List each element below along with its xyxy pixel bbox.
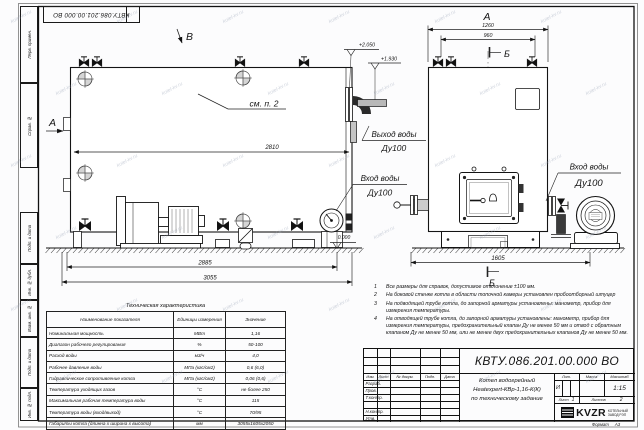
- spec-cell-name: Максимальная рабочая температура воды: [47, 395, 174, 406]
- note-number: 2: [372, 292, 386, 299]
- drain-fitting: [239, 229, 253, 250]
- tb-scale-label: Масштаб: [604, 373, 635, 380]
- note-item: 1 Все размеры для справок, допустимое от…: [372, 284, 630, 291]
- spec-cell-value: 1,16: [226, 328, 286, 339]
- margin-box-perv-primen: Перв. примен.: [20, 6, 38, 83]
- svg-text:3055: 3055: [203, 276, 217, 282]
- stamp-divider: [126, 7, 127, 22]
- svg-text:Выход воды: Выход воды: [372, 130, 417, 139]
- spec-row: Расход воды м3/ч 4,0: [47, 350, 286, 361]
- tb-mass-label: Масса: [579, 373, 604, 380]
- spec-cell-value: 0,6 (6,0): [226, 361, 286, 372]
- blower-fan: [571, 197, 620, 249]
- note-text: Все размеры для справок, допустимое откл…: [386, 284, 630, 291]
- spec-cell-units: мм: [174, 418, 226, 429]
- spec-header-value: Значение: [226, 312, 286, 328]
- svg-text:Б: Б: [504, 49, 510, 59]
- note-number: 1: [372, 284, 386, 291]
- svg-text:см. п. 2: см. п. 2: [250, 99, 279, 109]
- svg-text:1605: 1605: [491, 256, 505, 262]
- svg-text:А: А: [482, 11, 490, 23]
- format-label: Формат: [592, 422, 609, 427]
- svg-text:+2.050: +2.050: [359, 43, 375, 49]
- tb-doc-name-line1: Котел водогрейный: [479, 377, 535, 386]
- spec-cell-name: Диапазон рабочего регулирования: [47, 339, 174, 350]
- spec-cell-units: °С: [174, 395, 226, 406]
- kvzr-logo-text: KVZR: [576, 407, 606, 419]
- tb-doc-name-line2: Heatexpert-КВр-1,16-К(К): [473, 386, 541, 395]
- tb-col-dokum: № докум.: [390, 373, 420, 380]
- spec-row: Температура воды (вход/выход) °С 70/95: [47, 407, 286, 418]
- note-text: На отводящей трубе котла, до запорной ар…: [386, 316, 630, 337]
- margin-box-podp-data-1: Подп. и дата: [20, 212, 38, 264]
- tb-col-list: Лист: [377, 373, 390, 380]
- tb-sign-prov: Пров.: [364, 387, 392, 394]
- right-inlet-valve: [549, 197, 572, 238]
- company-name: КОТЕЛЬНЫЙ ЗАВОД РЭП: [608, 409, 628, 417]
- tb-col-izm: Изм.: [364, 373, 377, 380]
- tb-company-cell: KVZR КОТЕЛЬНЫЙ ЗАВОД РЭП: [554, 403, 635, 422]
- furnace-door: [460, 167, 524, 224]
- spec-cell-name: Рабочее давление воды: [47, 361, 174, 372]
- spec-cell-value: 50-100: [226, 339, 286, 350]
- note-text: На подводящей трубе котла, до запорной а…: [386, 301, 630, 315]
- spec-cell-units: м3/ч: [174, 350, 226, 361]
- svg-text:2885: 2885: [197, 261, 212, 267]
- spec-cell-units: МПа (кгс/см2): [174, 361, 226, 372]
- spec-cell-value: 115: [226, 395, 286, 406]
- spec-cell-value: 3055х1605х2050: [226, 418, 286, 429]
- spec-cell-value: не более 250: [226, 384, 286, 395]
- spec-cell-units: %: [174, 339, 226, 350]
- kvzr-logo-icon: [561, 407, 574, 418]
- spec-cell-value: 0,06 (0,6): [226, 373, 286, 384]
- spec-table-title: Техническая характеристика: [46, 303, 285, 309]
- format-note: Формат А3: [578, 422, 634, 427]
- svg-text:+1.930: +1.930: [381, 57, 397, 63]
- tb-sign-utv: Утв.: [364, 415, 392, 422]
- tb-doc-name: Котел водогрейный Heatexpert-КВр-1,16-К(…: [460, 373, 554, 426]
- inlet-label-front: Вход воды Ду100: [546, 163, 621, 202]
- margin-box-podp-data-2: Подп. и дата: [20, 337, 38, 388]
- spec-cell-name: Гидравлическое сопротивление котла: [47, 373, 174, 384]
- svg-text:Вход воды: Вход воды: [361, 174, 400, 183]
- tb-scale-value: 1:15: [604, 380, 635, 396]
- margin-label: Подп. и дата: [27, 349, 32, 376]
- tb-lit-value: И: [554, 380, 562, 396]
- title-block: КВТУ.086.201.00.000 ВО Изм. Лист № докум…: [363, 348, 634, 421]
- ground-hatch-left: [46, 248, 364, 253]
- tb-doc-name-line3: по техническому задание: [471, 395, 543, 404]
- spec-row: Номинальная мощность МВт 1,16: [47, 328, 286, 339]
- tb-sign-tkontr: Т.контр.: [364, 394, 392, 401]
- outlet-label: Выход воды Ду100: [362, 126, 426, 153]
- svg-text:Ду100: Ду100: [381, 143, 407, 153]
- svg-text:960: 960: [484, 33, 493, 39]
- notes-list: 1 Все размеры для справок, допустимое от…: [372, 284, 630, 338]
- tb-sheets-cell: Листов 2: [579, 396, 635, 403]
- svg-text:Ду100: Ду100: [367, 188, 393, 198]
- tb-sign-nkontr: Н.контр.: [364, 408, 392, 415]
- boiler-side-view: [46, 57, 387, 253]
- tb-sign-blank: [364, 401, 392, 408]
- spec-cell-name: Температура уходящих газов: [47, 384, 174, 395]
- note-item: 3 На подводящей трубе котла, до запорной…: [372, 301, 630, 315]
- margin-box-inv-dubl: Инв. № дубл.: [20, 264, 38, 300]
- tb-line: [562, 380, 563, 396]
- svg-text:Вход воды: Вход воды: [570, 163, 609, 172]
- format-value: А3: [615, 422, 620, 427]
- spec-row: Температура уходящих газов °С не более 2…: [47, 384, 286, 395]
- spec-row: Габариты котла (длинна х ширина х высота…: [47, 418, 286, 429]
- tb-line: [570, 380, 571, 396]
- company-line2: ЗАВОД РЭП: [608, 413, 626, 417]
- note-item: 4 На отводящей трубе котла, до запорной …: [372, 316, 630, 337]
- svg-text:1260: 1260: [482, 23, 494, 29]
- spec-cell-units: °С: [174, 407, 226, 418]
- svg-text:В: В: [186, 31, 193, 43]
- tb-sign-razrab: Разраб.: [364, 380, 392, 387]
- tb-designation: КВТУ.086.201.00.000 ВО: [460, 350, 634, 372]
- spec-header-name: Наименование показателя: [47, 312, 174, 328]
- margin-label: Взам. инв. №: [27, 305, 32, 332]
- spec-row: Гидравлическое сопротивление котла МПа (…: [47, 373, 286, 384]
- tb-lit-label: Лит.: [554, 373, 579, 380]
- tb-line: [420, 349, 421, 422]
- spec-table: Наименование показателя Единицы измерени…: [46, 311, 286, 430]
- spec-cell-value: 70/95: [226, 407, 286, 418]
- left-pipe-valve: [394, 196, 429, 215]
- note-number: 4: [372, 316, 386, 337]
- spec-cell-name: Габариты котла (длинна х ширина х высота…: [47, 418, 174, 429]
- tb-col-data: Дата: [440, 373, 459, 380]
- spec-table-block: Техническая характеристика Наименование …: [46, 303, 285, 430]
- tb-line: [440, 349, 441, 422]
- tb-col-podp: Подп.: [420, 373, 440, 380]
- spec-cell-units: °С: [174, 384, 226, 395]
- tb-sheet-value: 1: [572, 397, 575, 403]
- spec-cell-units: МВт: [174, 328, 226, 339]
- spec-cell-name: Номинальная мощность: [47, 328, 174, 339]
- stamp-text: КВТУ.086.201.00.000 ВО: [53, 11, 129, 18]
- svg-text:0.000: 0.000: [338, 235, 351, 241]
- boiler-front-view: [394, 51, 625, 253]
- margin-box-vzam-inv: Взам. инв. №: [20, 300, 38, 337]
- svg-text:2810: 2810: [264, 145, 279, 151]
- spec-header-units: Единицы измерения: [174, 312, 226, 328]
- inverted-designation-stamp: КВТУ.086.201.00.000 ВО: [43, 6, 140, 23]
- tb-line: [364, 357, 459, 358]
- margin-label: Справ. №: [27, 116, 32, 136]
- margin-label: Подп. и дата: [27, 225, 32, 252]
- spec-cell-units: МПа (кгс/см2): [174, 373, 226, 384]
- spec-row: Максимальная рабочая температура воды °С…: [47, 395, 286, 406]
- margin-label: Инв. № подл.: [27, 391, 32, 418]
- svg-text:Ду100: Ду100: [574, 178, 603, 189]
- spec-cell-name: Температура воды (вход/выход): [47, 407, 174, 418]
- margin-box-sprav-no: Справ. №: [20, 83, 38, 168]
- spec-header-row: Наименование показателя Единицы измерени…: [47, 312, 286, 328]
- tb-sheets-value: 2: [620, 397, 623, 403]
- tb-sheet-cell: Лист 1: [554, 396, 579, 403]
- spec-row: Диапазон рабочего регулирования % 50-100: [47, 339, 286, 350]
- base-frame: [442, 232, 540, 248]
- spec-cell-name: Расход воды: [47, 350, 174, 361]
- note-number: 3: [372, 301, 386, 315]
- spec-cell-value: 4,0: [226, 350, 286, 361]
- tb-line: [364, 365, 459, 366]
- drawing-sheet: 2810 2885 3055 В А см. п. 2 +2.050: [0, 0, 644, 430]
- note-item: 2 На боковой стенке котла в области топо…: [372, 292, 630, 299]
- tb-sheets-label: Листов: [592, 397, 606, 402]
- spec-row: Рабочее давление воды МПа (кгс/см2) 0,6 …: [47, 361, 286, 372]
- tb-sheet-label: Лист: [559, 397, 569, 402]
- pressure-gauge: [320, 209, 343, 248]
- note-text: На боковой стенке котла в области топочн…: [386, 292, 630, 299]
- margin-label: Перв. примен.: [27, 30, 32, 59]
- margin-label: Инв. № дубл.: [27, 269, 32, 296]
- svg-text:А: А: [48, 117, 56, 129]
- margin-box-inv-podl: Инв. № подл.: [20, 388, 38, 421]
